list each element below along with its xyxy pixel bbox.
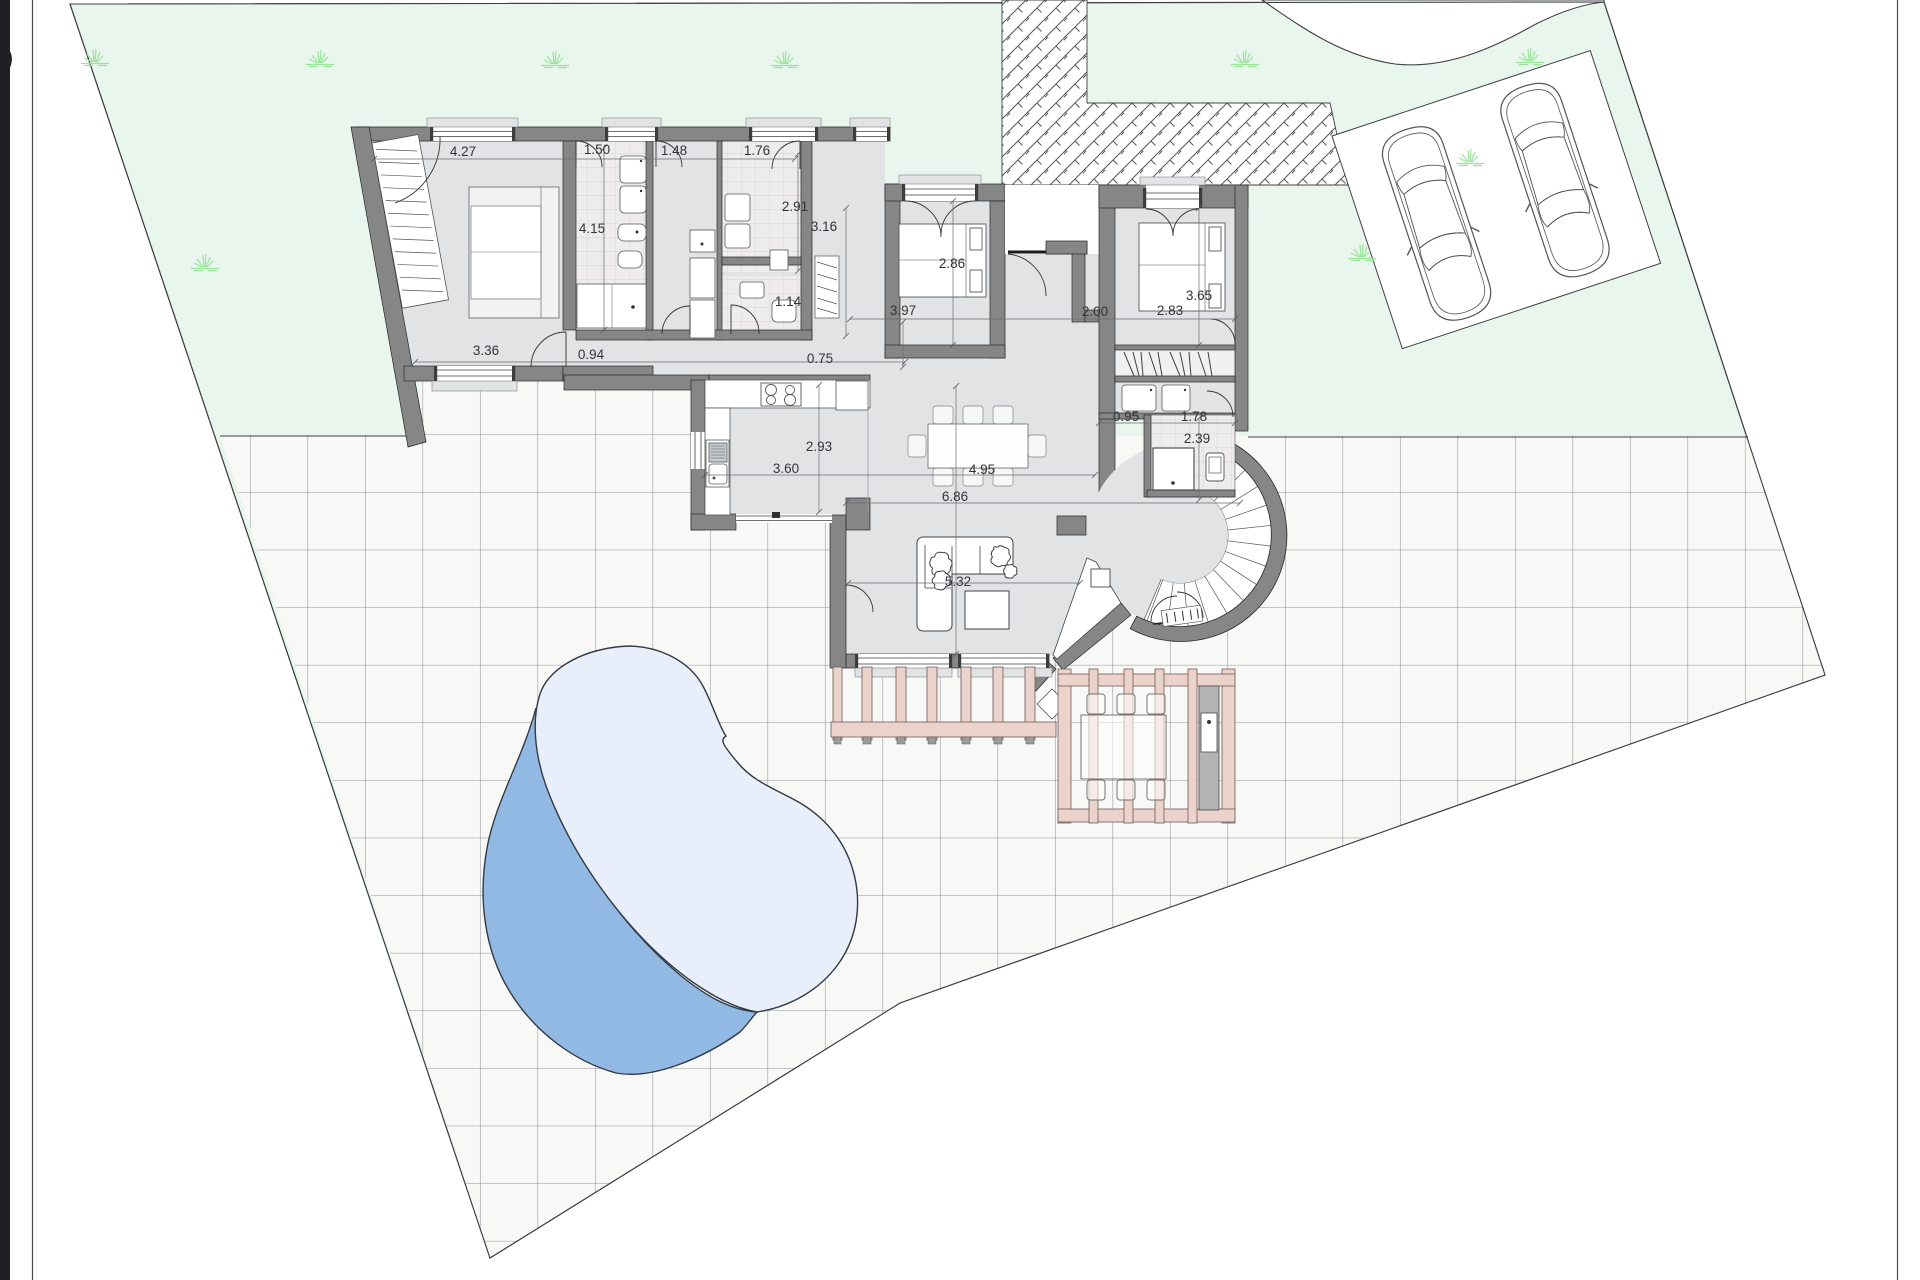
- svg-text:3.65: 3.65: [1186, 288, 1212, 303]
- svg-text:1.78: 1.78: [1181, 409, 1207, 424]
- svg-text:4.15: 4.15: [579, 221, 605, 236]
- svg-text:4.95: 4.95: [969, 462, 995, 477]
- svg-text:0.95: 0.95: [1113, 409, 1139, 424]
- svg-text:1.76: 1.76: [744, 143, 770, 158]
- svg-text:2.00: 2.00: [1082, 304, 1108, 319]
- svg-text:3.97: 3.97: [890, 303, 916, 318]
- svg-text:0.75: 0.75: [807, 351, 833, 366]
- svg-text:3.16: 3.16: [811, 219, 837, 234]
- svg-text:2.91: 2.91: [782, 199, 808, 214]
- svg-text:3.60: 3.60: [773, 461, 799, 476]
- svg-text:3.36: 3.36: [473, 343, 499, 358]
- svg-text:1.48: 1.48: [661, 143, 687, 158]
- svg-text:2.83: 2.83: [1157, 303, 1183, 318]
- svg-text:2.39: 2.39: [1184, 431, 1210, 446]
- svg-text:2.86: 2.86: [939, 256, 965, 271]
- svg-text:2.93: 2.93: [806, 439, 832, 454]
- svg-text:4.27: 4.27: [450, 144, 476, 159]
- svg-text:1.50: 1.50: [584, 142, 610, 157]
- svg-text:6.86: 6.86: [942, 489, 968, 504]
- svg-text:0.94: 0.94: [578, 347, 605, 362]
- svg-text:1.14: 1.14: [775, 294, 802, 309]
- svg-text:5.32: 5.32: [945, 574, 971, 589]
